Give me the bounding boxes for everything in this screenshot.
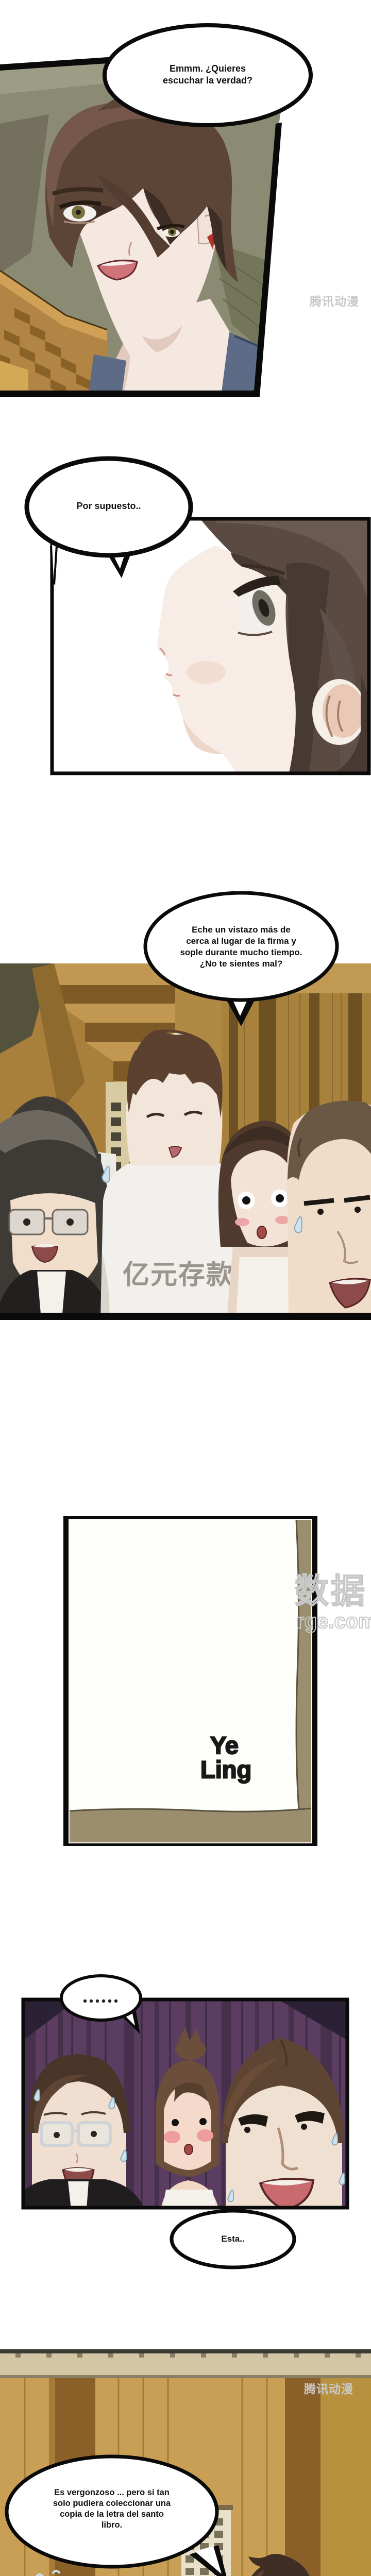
- svg-text:亿元存款: 亿元存款: [123, 1260, 234, 1290]
- svg-text:Ling: Ling: [200, 1756, 251, 1783]
- svg-text:Ye: Ye: [210, 1732, 239, 1759]
